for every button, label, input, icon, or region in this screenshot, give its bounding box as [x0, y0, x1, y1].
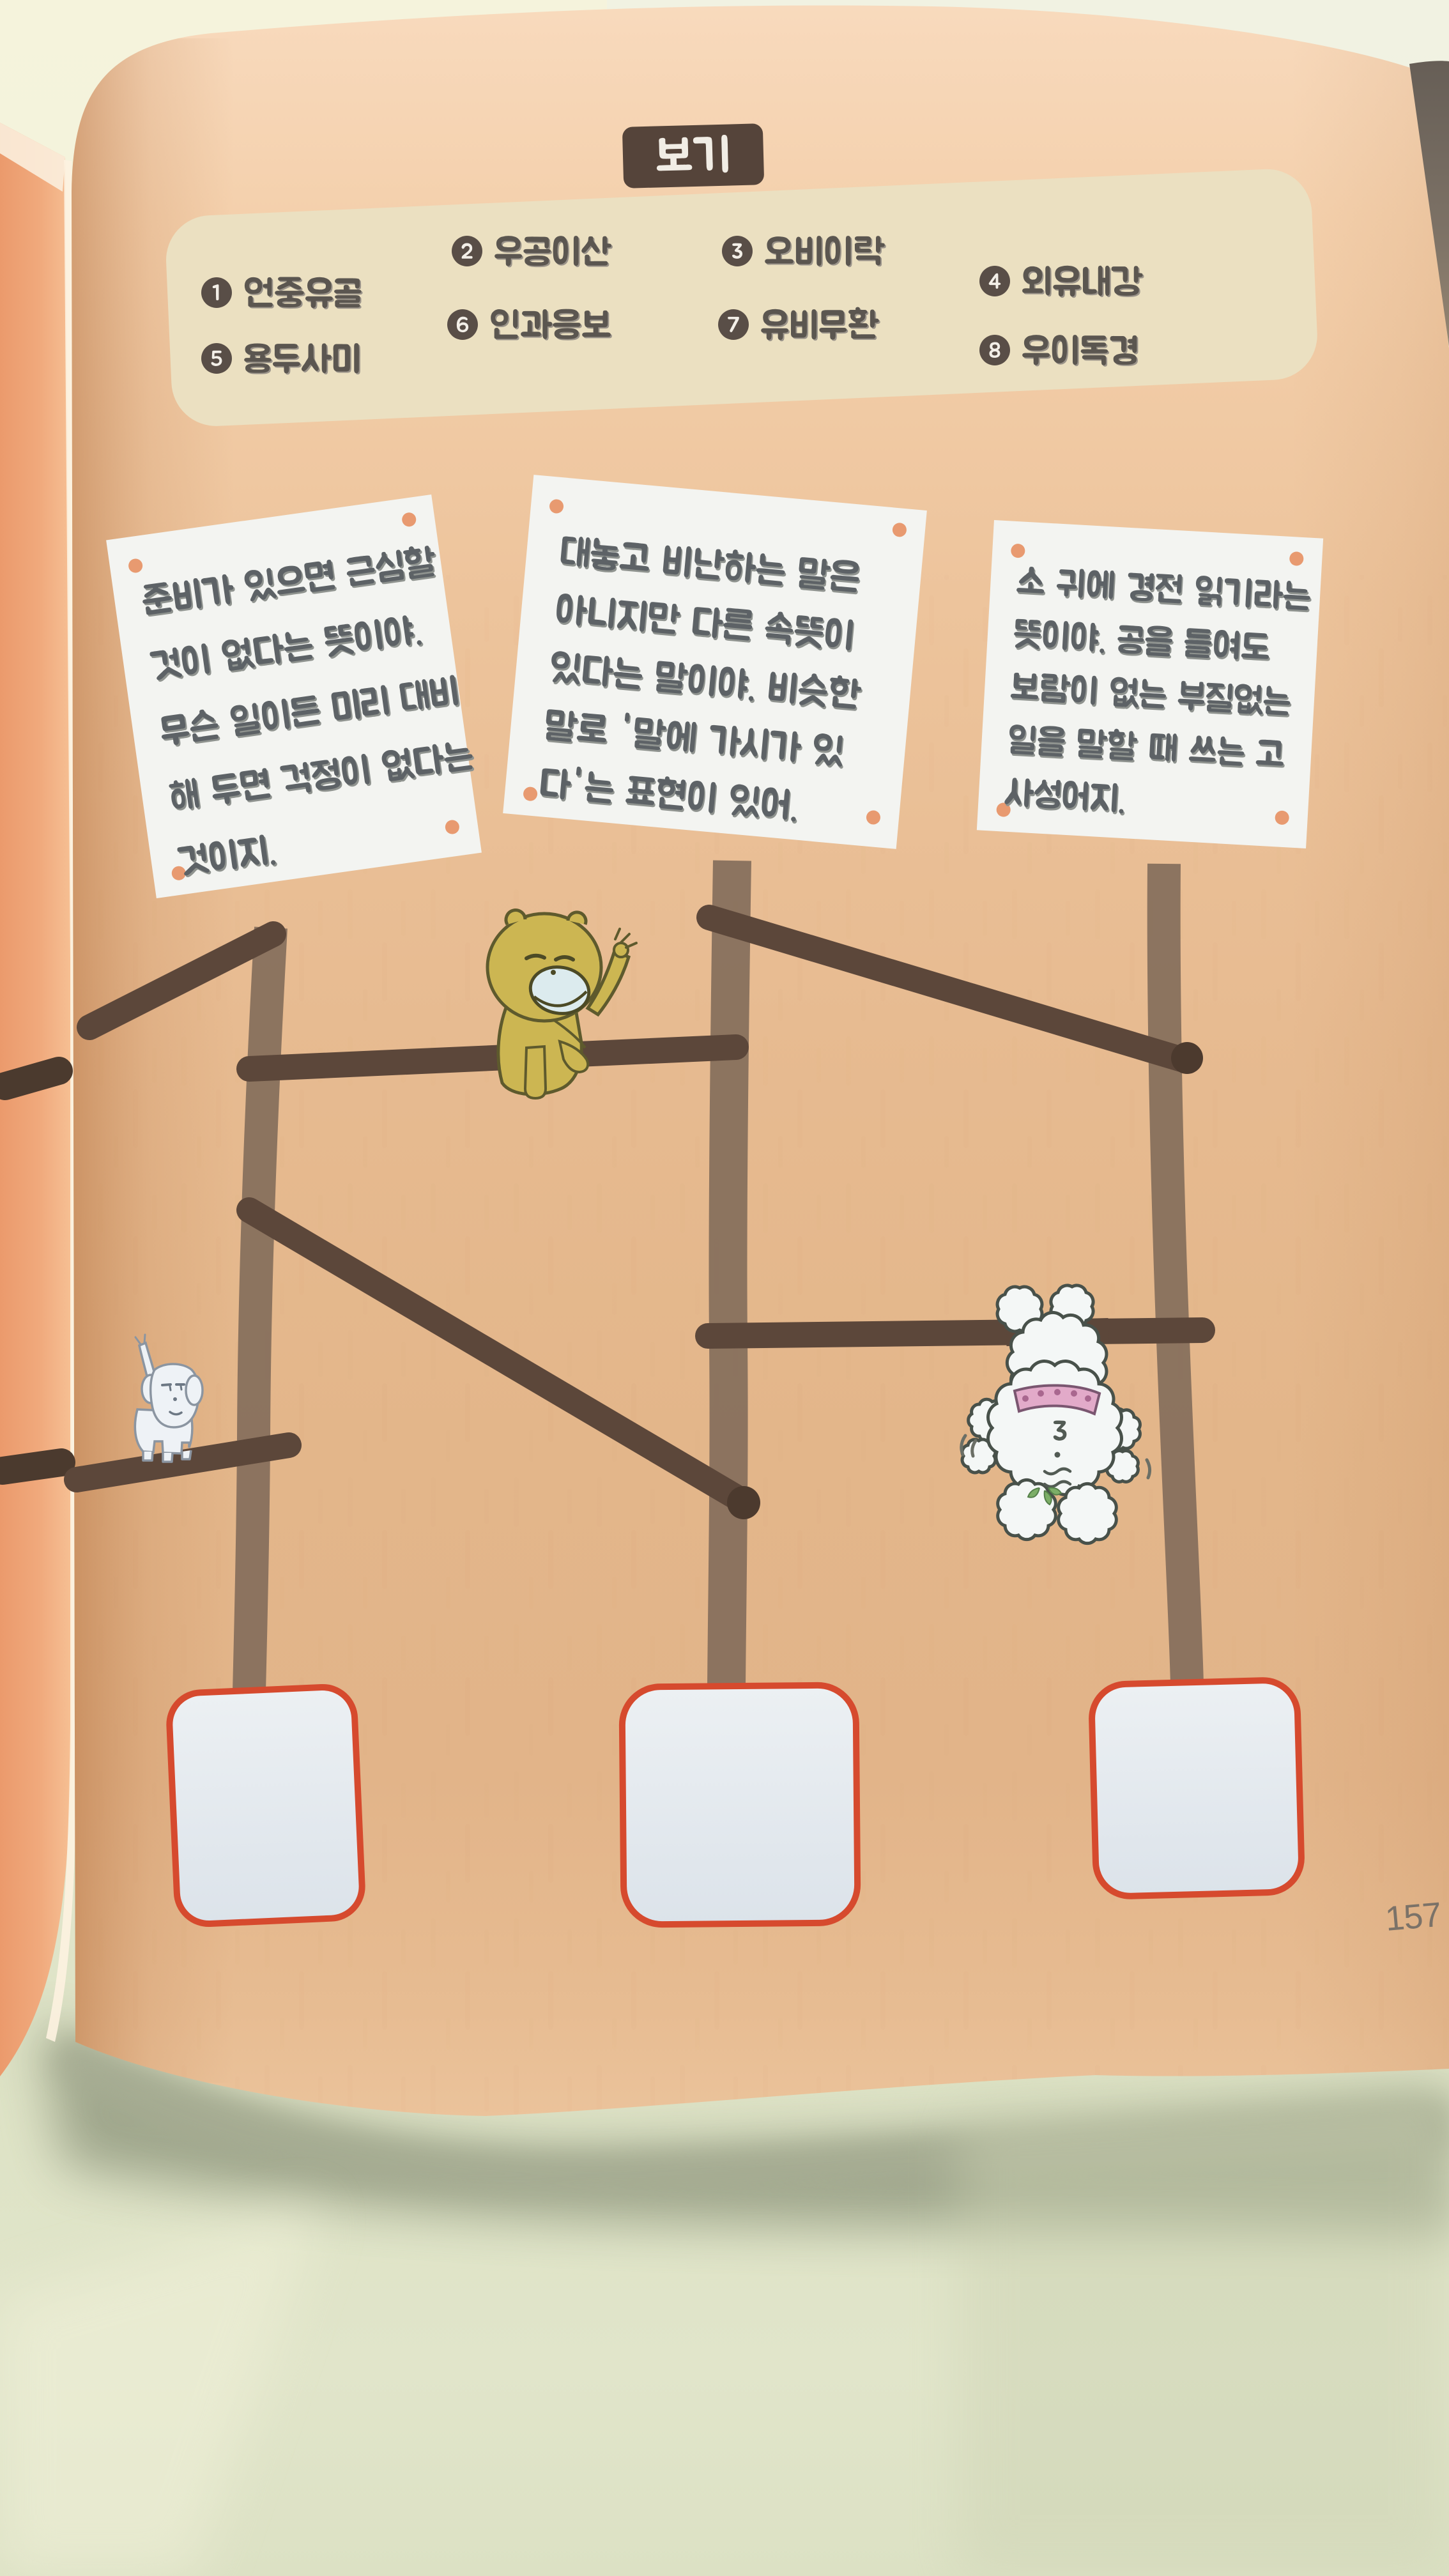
svg-text:157: 157	[1384, 1896, 1443, 1938]
